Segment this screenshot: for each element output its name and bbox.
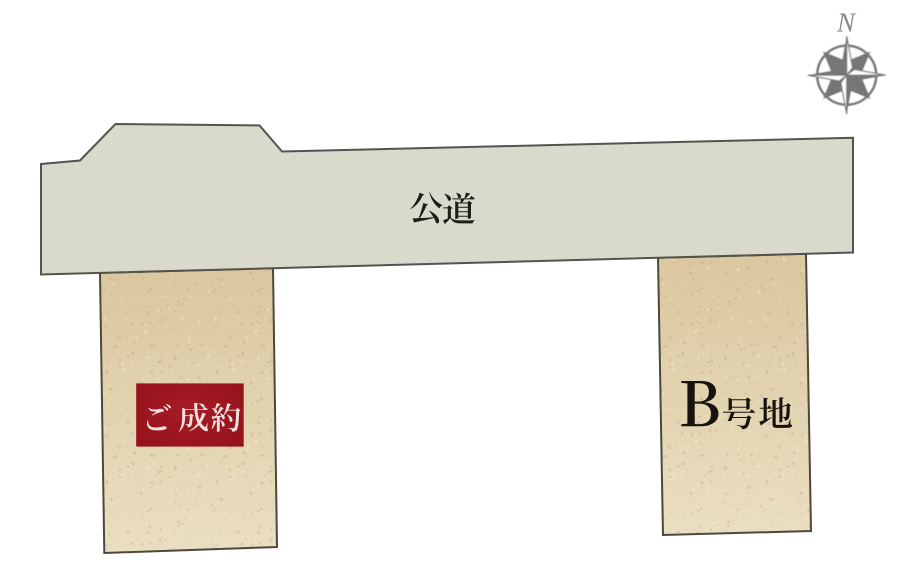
svg-text:N: N <box>836 8 857 38</box>
